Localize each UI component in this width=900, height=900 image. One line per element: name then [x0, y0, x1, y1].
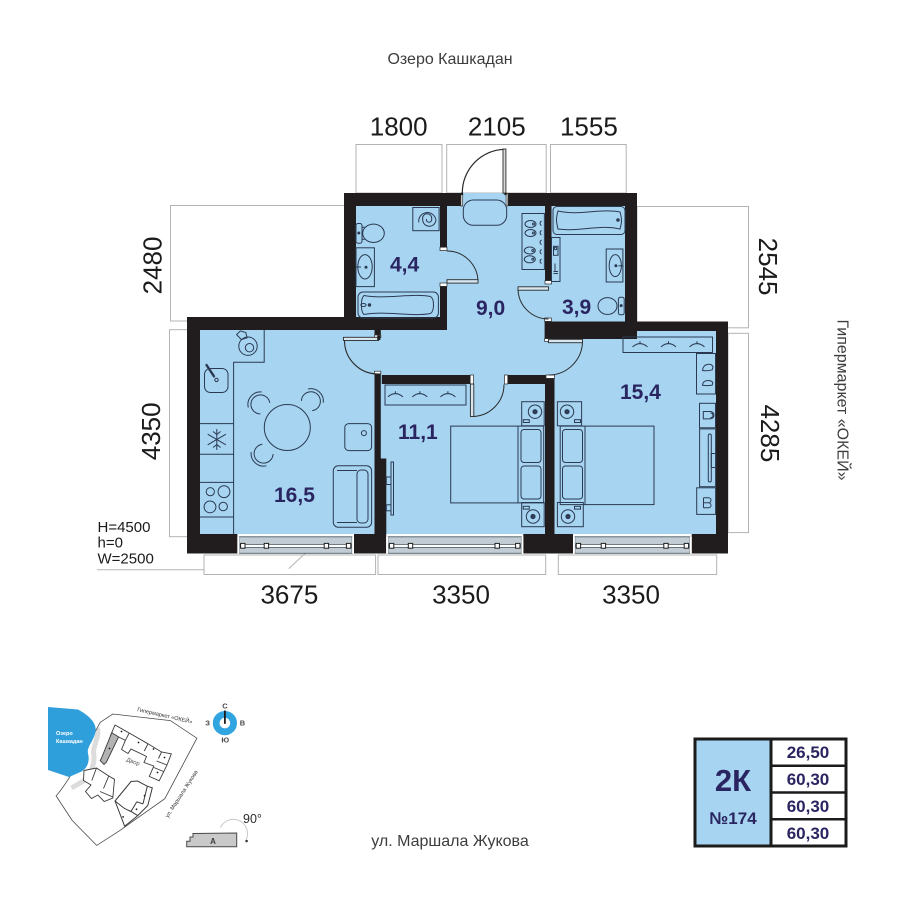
svg-text:1800: 1800 — [370, 112, 428, 142]
svg-text:С: С — [222, 701, 228, 710]
svg-text:9,0: 9,0 — [476, 297, 505, 320]
svg-text:Озеро: Озеро — [56, 731, 73, 737]
svg-text:2К: 2К — [715, 763, 751, 798]
svg-text:4,4: 4,4 — [390, 254, 420, 277]
svg-text:60,30: 60,30 — [787, 824, 830, 843]
svg-text:3,9: 3,9 — [562, 296, 591, 319]
svg-text:Озеро Кашкадан: Озеро Кашкадан — [387, 51, 512, 68]
svg-text:А: А — [210, 837, 216, 846]
svg-text:В: В — [240, 718, 246, 727]
svg-text:2480: 2480 — [138, 237, 168, 295]
svg-text:11,1: 11,1 — [398, 421, 438, 444]
svg-text:1555: 1555 — [560, 112, 618, 142]
svg-text:60,30: 60,30 — [787, 770, 830, 789]
svg-text:15,4: 15,4 — [620, 381, 661, 404]
svg-text:3350: 3350 — [602, 580, 660, 610]
svg-text:Гипермаркет «ОКЕЙ»: Гипермаркет «ОКЕЙ» — [834, 319, 853, 480]
svg-text:h=0: h=0 — [98, 535, 123, 552]
svg-text:2105: 2105 — [468, 112, 526, 142]
svg-text:4350: 4350 — [136, 402, 166, 460]
svg-text:2545: 2545 — [753, 238, 783, 296]
svg-text:16,5: 16,5 — [274, 484, 315, 507]
svg-text:H=4500: H=4500 — [98, 519, 151, 536]
svg-text:Ю: Ю — [221, 735, 229, 744]
svg-text:ул. Маршала Жукова: ул. Маршала Жукова — [371, 833, 529, 850]
svg-text:З: З — [205, 719, 210, 728]
svg-text:4285: 4285 — [755, 404, 785, 462]
svg-text:3350: 3350 — [432, 580, 490, 610]
svg-text:60,30: 60,30 — [787, 797, 830, 816]
svg-text:90°: 90° — [243, 812, 262, 826]
svg-text:3675: 3675 — [260, 580, 318, 610]
svg-text:26,50: 26,50 — [787, 743, 830, 762]
svg-text:Кашкадан: Кашкадан — [56, 739, 83, 745]
svg-text:№174: №174 — [709, 809, 757, 828]
svg-text:W=2500: W=2500 — [98, 551, 154, 568]
